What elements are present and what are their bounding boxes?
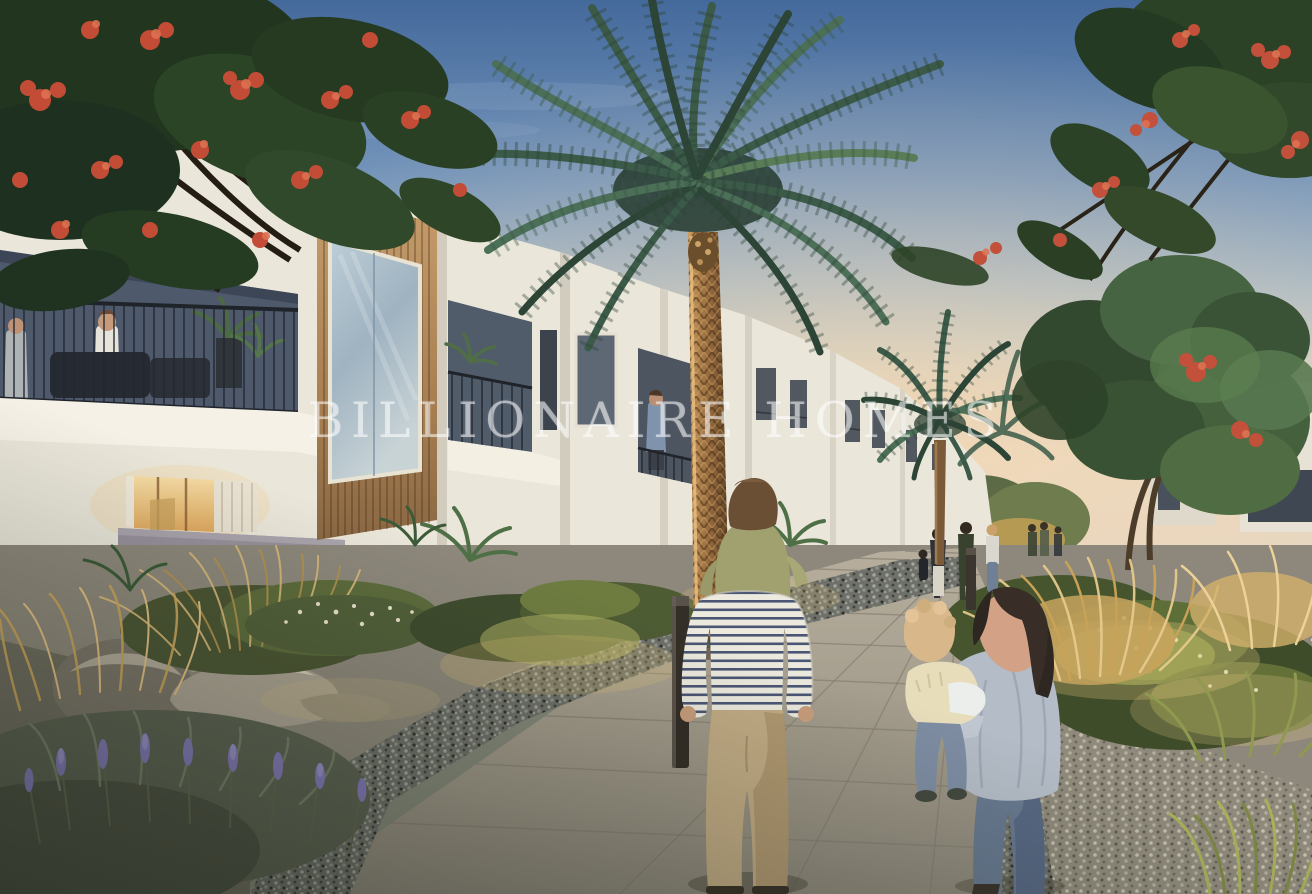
scene-canvas xyxy=(0,0,1312,894)
vignette-overlay xyxy=(0,0,1312,894)
property-render-image: BILLIONAIRE HOMES xyxy=(0,0,1312,894)
